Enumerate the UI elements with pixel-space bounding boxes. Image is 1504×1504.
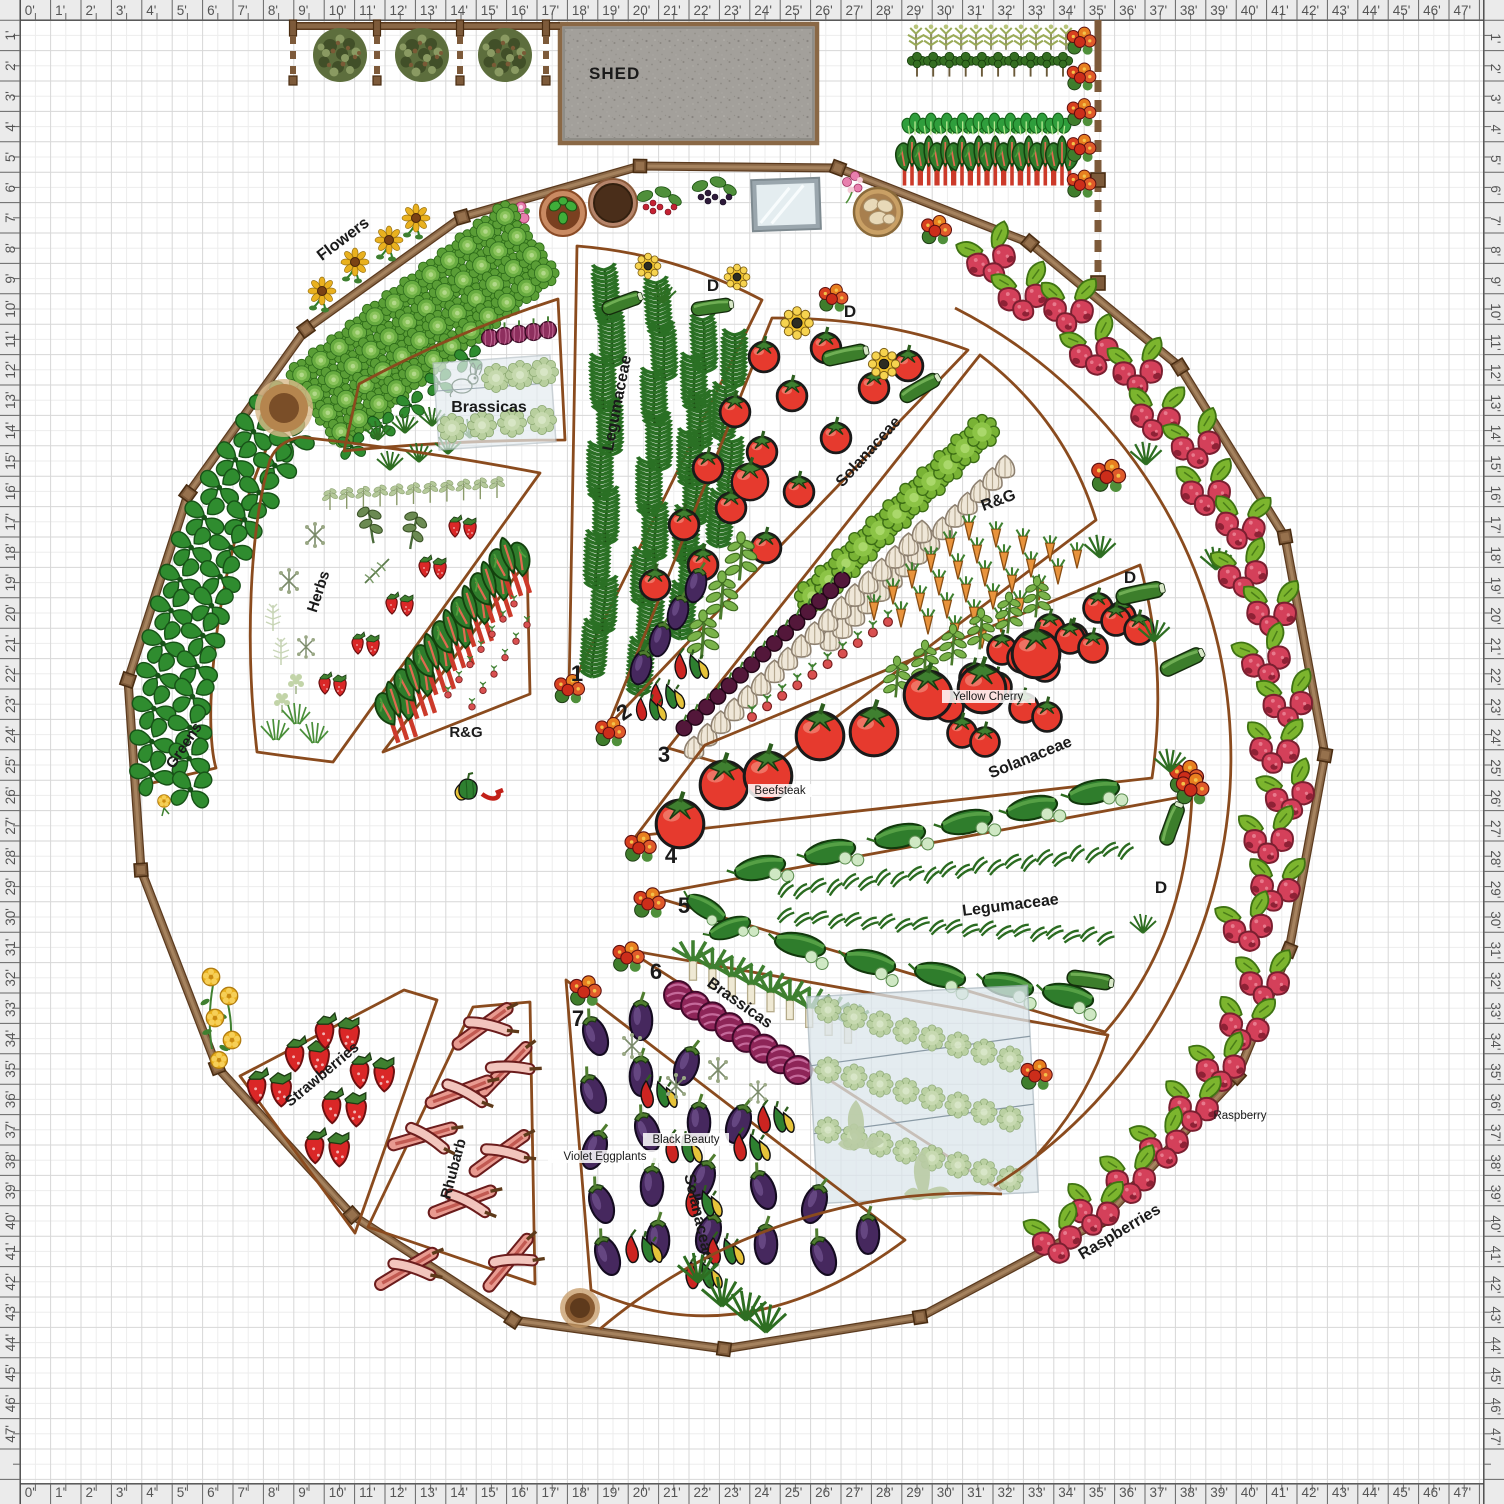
svg-text:12': 12'	[3, 361, 18, 379]
svg-text:5': 5'	[1488, 155, 1503, 165]
svg-text:29': 29'	[906, 1485, 924, 1500]
svg-text:18': 18'	[572, 1485, 590, 1500]
svg-text:D: D	[707, 276, 719, 295]
svg-text:37': 37'	[1488, 1124, 1503, 1142]
svg-text:3': 3'	[116, 3, 126, 18]
svg-text:33': 33'	[1028, 3, 1046, 18]
svg-text:15': 15'	[1488, 455, 1503, 473]
svg-text:8': 8'	[268, 3, 278, 18]
svg-text:10': 10'	[1488, 303, 1503, 321]
svg-text:Raspberry: Raspberry	[1213, 1110, 1266, 1122]
svg-text:20': 20'	[1488, 607, 1503, 625]
svg-text:16': 16'	[511, 1485, 529, 1500]
svg-text:27': 27'	[846, 3, 864, 18]
svg-text:46': 46'	[1488, 1398, 1503, 1416]
svg-text:42': 42'	[3, 1273, 18, 1291]
svg-text:40': 40'	[1241, 3, 1259, 18]
svg-text:10': 10'	[329, 1485, 347, 1500]
svg-text:32': 32'	[998, 1485, 1016, 1500]
svg-text:9': 9'	[1488, 277, 1503, 287]
svg-text:7': 7'	[3, 213, 18, 223]
svg-text:6: 6	[650, 959, 662, 984]
svg-text:36': 36'	[1119, 1485, 1137, 1500]
svg-text:38': 38'	[1180, 1485, 1198, 1500]
svg-text:16': 16'	[511, 3, 529, 18]
svg-text:29': 29'	[906, 3, 924, 18]
svg-text:R&G: R&G	[449, 724, 482, 741]
svg-text:32': 32'	[1488, 972, 1503, 990]
svg-text:2': 2'	[86, 1485, 96, 1500]
svg-text:33': 33'	[3, 999, 18, 1017]
svg-text:35': 35'	[1089, 1485, 1107, 1500]
svg-text:2': 2'	[3, 61, 18, 71]
svg-text:42': 42'	[1488, 1276, 1503, 1294]
svg-text:45': 45'	[1488, 1367, 1503, 1385]
svg-text:13': 13'	[420, 1485, 438, 1500]
svg-text:22': 22'	[1488, 668, 1503, 686]
svg-text:43': 43'	[1488, 1306, 1503, 1324]
svg-text:12': 12'	[390, 1485, 408, 1500]
svg-text:45': 45'	[1393, 3, 1411, 18]
svg-text:34': 34'	[3, 1030, 18, 1048]
svg-text:28': 28'	[1488, 850, 1503, 868]
svg-text:1: 1	[571, 661, 583, 686]
svg-text:2': 2'	[1488, 64, 1503, 74]
svg-text:27': 27'	[3, 817, 18, 835]
svg-text:30': 30'	[3, 908, 18, 926]
svg-text:28': 28'	[876, 1485, 894, 1500]
svg-text:46': 46'	[1423, 1485, 1441, 1500]
svg-text:0': 0'	[25, 1485, 35, 1500]
svg-text:21': 21'	[3, 635, 18, 653]
svg-text:16': 16'	[1488, 486, 1503, 504]
svg-text:5': 5'	[3, 152, 18, 162]
svg-text:31': 31'	[967, 1485, 985, 1500]
svg-text:35': 35'	[1089, 3, 1107, 18]
svg-text:8': 8'	[268, 1485, 278, 1500]
svg-text:5: 5	[678, 893, 690, 918]
svg-text:25': 25'	[785, 1485, 803, 1500]
svg-text:34': 34'	[1058, 3, 1076, 18]
svg-text:38': 38'	[1180, 3, 1198, 18]
svg-text:12': 12'	[1488, 364, 1503, 382]
svg-text:47': 47'	[1488, 1428, 1503, 1446]
svg-text:24': 24'	[1488, 729, 1503, 747]
svg-text:Black Beauty: Black Beauty	[652, 1134, 719, 1146]
svg-text:21': 21'	[1488, 638, 1503, 656]
svg-text:41': 41'	[1271, 1485, 1289, 1500]
svg-text:17': 17'	[542, 3, 560, 18]
svg-text:10': 10'	[329, 3, 347, 18]
svg-text:44': 44'	[1362, 3, 1380, 18]
svg-text:7': 7'	[238, 1485, 248, 1500]
svg-text:1': 1'	[1488, 33, 1503, 43]
svg-text:22': 22'	[694, 3, 712, 18]
svg-text:44': 44'	[1488, 1337, 1503, 1355]
svg-text:13': 13'	[420, 3, 438, 18]
svg-text:25': 25'	[1488, 759, 1503, 777]
svg-text:41': 41'	[1488, 1246, 1503, 1264]
svg-text:14': 14'	[450, 3, 468, 18]
svg-text:28': 28'	[876, 3, 894, 18]
svg-text:18': 18'	[572, 3, 590, 18]
svg-text:8': 8'	[1488, 246, 1503, 256]
svg-text:34': 34'	[1488, 1033, 1503, 1051]
svg-text:15': 15'	[481, 3, 499, 18]
svg-text:30': 30'	[1488, 911, 1503, 929]
svg-text:31': 31'	[967, 3, 985, 18]
svg-text:D: D	[1124, 568, 1136, 587]
svg-text:35': 35'	[1488, 1063, 1503, 1081]
svg-text:14': 14'	[3, 422, 18, 440]
svg-text:16': 16'	[3, 483, 18, 501]
svg-text:25': 25'	[785, 3, 803, 18]
svg-text:4': 4'	[3, 122, 18, 132]
svg-text:17': 17'	[3, 513, 18, 531]
svg-text:6': 6'	[207, 1485, 217, 1500]
svg-text:43': 43'	[1332, 3, 1350, 18]
svg-text:36': 36'	[1488, 1094, 1503, 1112]
svg-text:4': 4'	[1488, 125, 1503, 135]
svg-text:36': 36'	[1119, 3, 1137, 18]
svg-text:31': 31'	[3, 939, 18, 957]
svg-text:17': 17'	[542, 1485, 560, 1500]
svg-text:38': 38'	[3, 1151, 18, 1169]
svg-text:15': 15'	[481, 1485, 499, 1500]
svg-text:43': 43'	[3, 1303, 18, 1321]
svg-text:6': 6'	[207, 3, 217, 18]
svg-text:47': 47'	[1454, 3, 1472, 18]
svg-text:11': 11'	[359, 3, 376, 18]
svg-text:45': 45'	[3, 1364, 18, 1382]
svg-text:40': 40'	[3, 1212, 18, 1230]
svg-text:29': 29'	[3, 878, 18, 896]
svg-text:23': 23'	[724, 3, 742, 18]
svg-text:19': 19'	[602, 1485, 620, 1500]
svg-text:39': 39'	[1210, 1485, 1228, 1500]
svg-text:26': 26'	[815, 3, 833, 18]
svg-text:29': 29'	[1488, 881, 1503, 899]
svg-text:44': 44'	[3, 1334, 18, 1352]
svg-text:23': 23'	[1488, 698, 1503, 716]
svg-text:2': 2'	[86, 3, 96, 18]
svg-text:8': 8'	[3, 243, 18, 253]
svg-text:4: 4	[665, 843, 678, 868]
svg-text:35': 35'	[3, 1060, 18, 1078]
svg-text:11': 11'	[1488, 334, 1503, 351]
svg-text:33': 33'	[1488, 1002, 1503, 1020]
svg-text:42': 42'	[1302, 3, 1320, 18]
svg-text:19': 19'	[3, 574, 18, 592]
svg-text:Violet Eggplants: Violet Eggplants	[564, 1151, 647, 1163]
svg-text:5': 5'	[177, 1485, 187, 1500]
svg-text:36': 36'	[3, 1091, 18, 1109]
svg-text:15': 15'	[3, 452, 18, 470]
svg-text:37': 37'	[3, 1121, 18, 1139]
svg-text:46': 46'	[1423, 3, 1441, 18]
svg-text:31': 31'	[1488, 942, 1503, 960]
svg-text:30': 30'	[937, 1485, 955, 1500]
svg-text:Yellow Cherry: Yellow Cherry	[953, 691, 1024, 703]
svg-text:32': 32'	[3, 969, 18, 987]
svg-text:40': 40'	[1241, 1485, 1259, 1500]
svg-text:5': 5'	[177, 3, 187, 18]
svg-text:7': 7'	[1488, 216, 1503, 226]
svg-text:26': 26'	[1488, 790, 1503, 808]
svg-text:6': 6'	[3, 182, 18, 192]
svg-text:22': 22'	[694, 1485, 712, 1500]
svg-text:14': 14'	[1488, 425, 1503, 443]
svg-text:41': 41'	[1271, 3, 1289, 18]
svg-text:22': 22'	[3, 665, 18, 683]
svg-text:44': 44'	[1362, 1485, 1380, 1500]
svg-text:3': 3'	[1488, 94, 1503, 104]
svg-text:39': 39'	[1210, 3, 1228, 18]
svg-text:D: D	[844, 302, 856, 321]
svg-text:27': 27'	[846, 1485, 864, 1500]
svg-text:24': 24'	[754, 1485, 772, 1500]
svg-text:4': 4'	[146, 3, 156, 18]
svg-text:11': 11'	[359, 1485, 376, 1500]
svg-text:26': 26'	[815, 1485, 833, 1500]
svg-text:38': 38'	[1488, 1154, 1503, 1172]
svg-text:26': 26'	[3, 787, 18, 805]
svg-text:Beefsteak: Beefsteak	[754, 785, 805, 797]
svg-text:20': 20'	[3, 604, 18, 622]
svg-text:37': 37'	[1150, 1485, 1168, 1500]
svg-text:14': 14'	[450, 1485, 468, 1500]
svg-text:20': 20'	[633, 3, 651, 18]
svg-text:27': 27'	[1488, 820, 1503, 838]
svg-text:17': 17'	[1488, 516, 1503, 534]
svg-text:9': 9'	[298, 1485, 308, 1500]
svg-text:3': 3'	[3, 91, 18, 101]
svg-text:42': 42'	[1302, 1485, 1320, 1500]
svg-text:SHED: SHED	[589, 64, 640, 83]
svg-text:41': 41'	[3, 1243, 18, 1261]
svg-text:9': 9'	[298, 3, 308, 18]
svg-text:4': 4'	[146, 1485, 156, 1500]
svg-text:24': 24'	[754, 3, 772, 18]
svg-text:13': 13'	[1488, 394, 1503, 412]
svg-text:1': 1'	[55, 1485, 65, 1500]
svg-text:3': 3'	[116, 1485, 126, 1500]
svg-text:13': 13'	[3, 391, 18, 409]
svg-text:18': 18'	[1488, 546, 1503, 564]
svg-text:0': 0'	[25, 3, 35, 18]
svg-text:3: 3	[658, 742, 670, 767]
svg-text:47': 47'	[3, 1425, 18, 1443]
svg-text:30': 30'	[937, 3, 955, 18]
svg-text:12': 12'	[390, 3, 408, 18]
svg-text:32': 32'	[998, 3, 1016, 18]
svg-text:7: 7	[572, 1006, 584, 1031]
svg-text:45': 45'	[1393, 1485, 1411, 1500]
svg-text:39': 39'	[3, 1182, 18, 1200]
svg-text:39': 39'	[1488, 1185, 1503, 1203]
svg-text:23': 23'	[3, 695, 18, 713]
svg-text:25': 25'	[3, 756, 18, 774]
svg-text:47': 47'	[1454, 1485, 1472, 1500]
svg-text:34': 34'	[1058, 1485, 1076, 1500]
svg-text:46': 46'	[3, 1395, 18, 1413]
svg-text:11': 11'	[3, 331, 18, 348]
svg-text:40': 40'	[1488, 1215, 1503, 1233]
svg-text:24': 24'	[3, 726, 18, 744]
svg-text:Brassicas: Brassicas	[451, 399, 527, 416]
svg-text:D: D	[1155, 878, 1167, 897]
svg-text:43': 43'	[1332, 1485, 1350, 1500]
svg-text:23': 23'	[724, 1485, 742, 1500]
svg-text:18': 18'	[3, 543, 18, 561]
svg-text:37': 37'	[1150, 3, 1168, 18]
svg-text:21': 21'	[663, 1485, 681, 1500]
svg-text:19': 19'	[1488, 577, 1503, 595]
svg-text:20': 20'	[633, 1485, 651, 1500]
svg-text:9': 9'	[3, 274, 18, 284]
svg-text:1': 1'	[3, 30, 18, 40]
svg-text:6': 6'	[1488, 185, 1503, 195]
svg-text:33': 33'	[1028, 1485, 1046, 1500]
svg-text:1': 1'	[55, 3, 65, 18]
svg-text:28': 28'	[3, 847, 18, 865]
svg-text:7': 7'	[238, 3, 248, 18]
svg-text:10': 10'	[3, 300, 18, 318]
svg-text:21': 21'	[663, 3, 681, 18]
svg-text:19': 19'	[602, 3, 620, 18]
